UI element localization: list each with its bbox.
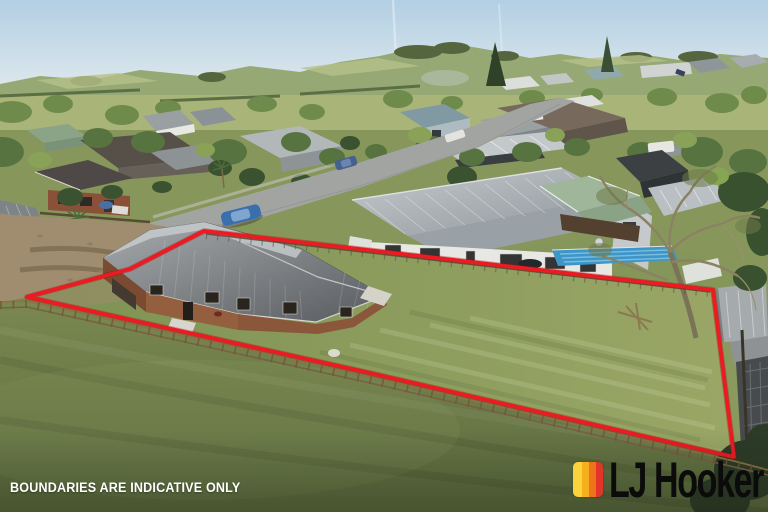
ljhooker-stripe xyxy=(589,462,596,497)
ljhooker-stripe xyxy=(573,462,582,497)
ljhooker-stripe-icon xyxy=(573,462,603,497)
front-door xyxy=(183,302,193,320)
ljhooker-logo: LJ Hooker xyxy=(573,458,768,502)
ljhooker-stripe xyxy=(582,462,589,497)
listing-photo: BOUNDARIES ARE INDICATIVE ONLY LJ Hooker xyxy=(0,0,768,512)
aerial-photo-scene xyxy=(0,0,768,512)
ljhooker-wordmark: LJ Hooker xyxy=(609,458,763,502)
garden-stone xyxy=(328,349,340,357)
watermark-text: BOUNDARIES ARE INDICATIVE ONLY xyxy=(10,480,240,495)
ljhooker-stripe xyxy=(596,462,603,497)
